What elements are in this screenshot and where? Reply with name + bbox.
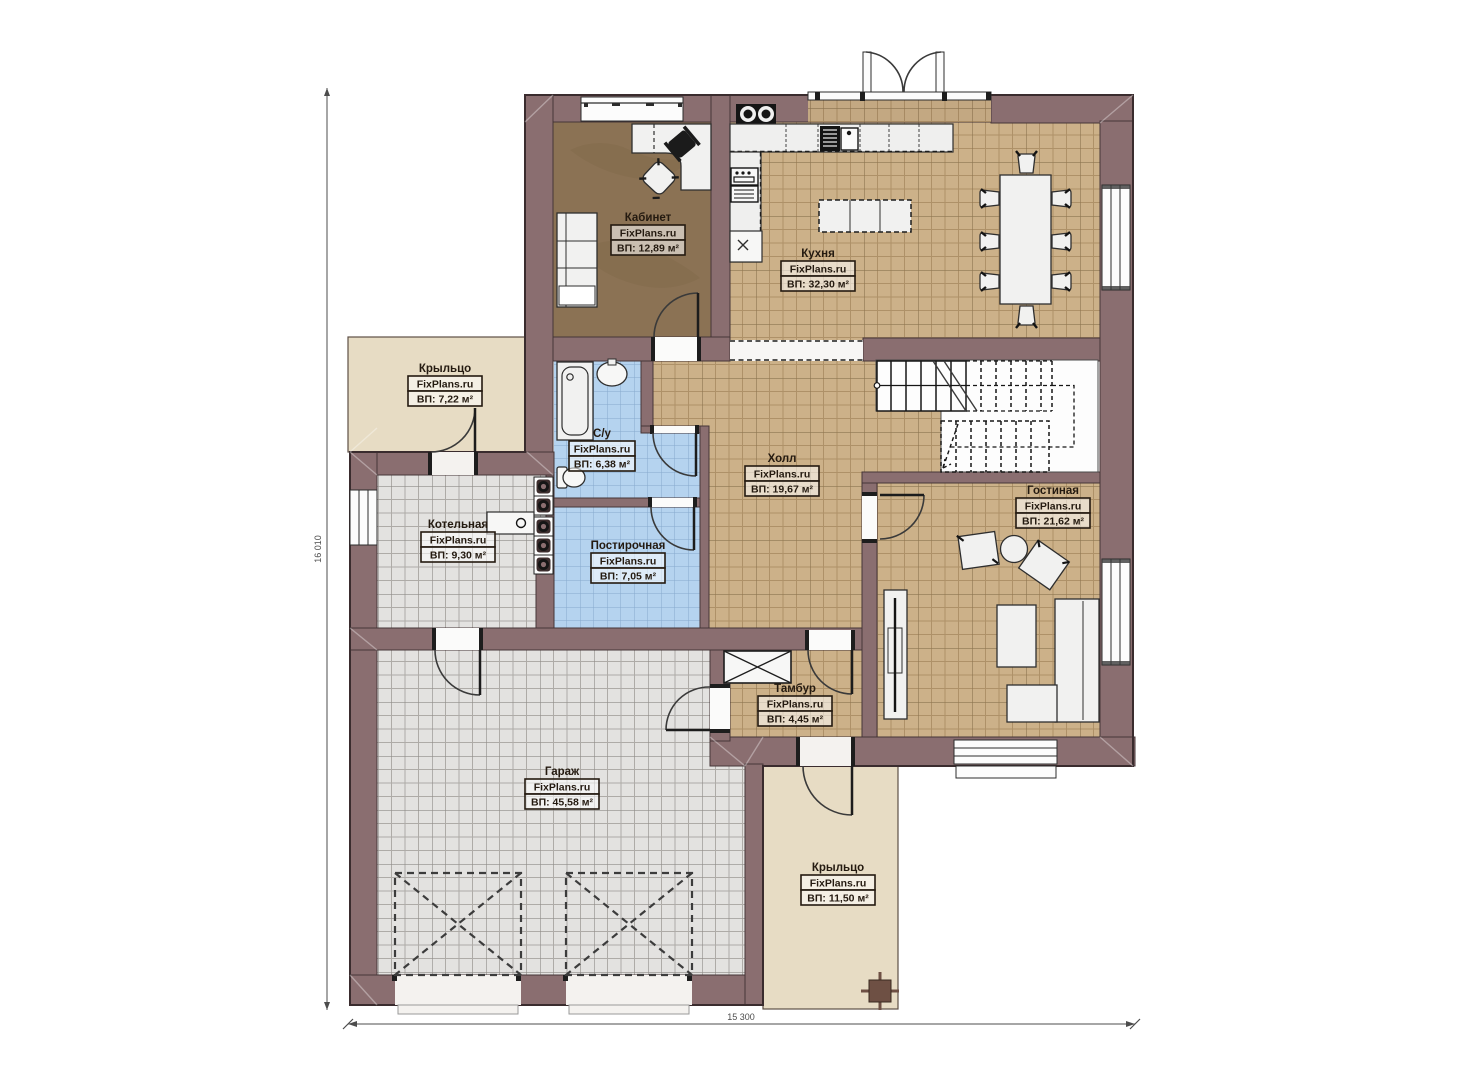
svg-text:ВП: 7,05 м²: ВП: 7,05 м² [600,571,657,583]
svg-text:ВП: 21,62 м²: ВП: 21,62 м² [1022,516,1085,528]
svg-text:FixPlans.ru: FixPlans.ru [600,556,657,568]
svg-text:ВП: 32,30 м²: ВП: 32,30 м² [787,279,850,291]
svg-text:FixPlans.ru: FixPlans.ru [810,878,867,890]
svg-text:ВП: 6,38 м²: ВП: 6,38 м² [574,459,631,471]
svg-text:ВП: 9,30 м²: ВП: 9,30 м² [430,550,487,562]
svg-text:С/у: С/у [593,428,612,440]
svg-text:FixPlans.ru: FixPlans.ru [1025,501,1082,513]
svg-text:Крыльцо: Крыльцо [419,363,471,375]
svg-text:Кабинет: Кабинет [625,212,672,224]
svg-text:Гостиная: Гостиная [1027,485,1079,497]
svg-text:Крыльцо: Крыльцо [812,862,864,874]
svg-text:Постирочная: Постирочная [591,540,666,552]
svg-text:FixPlans.ru: FixPlans.ru [620,228,677,240]
svg-text:Кухня: Кухня [801,248,835,260]
svg-text:Гараж: Гараж [545,766,580,778]
svg-text:ВП: 7,22 м²: ВП: 7,22 м² [417,394,474,406]
svg-text:FixPlans.ru: FixPlans.ru [430,535,487,547]
svg-text:15 300: 15 300 [727,1012,755,1022]
svg-text:ВП: 4,45 м²: ВП: 4,45 м² [767,714,824,726]
svg-text:ВП: 12,89 м²: ВП: 12,89 м² [617,243,680,255]
svg-text:FixPlans.ru: FixPlans.ru [574,444,631,456]
svg-text:16 010: 16 010 [313,535,323,563]
svg-text:Котельная: Котельная [428,519,488,531]
svg-text:Холл: Холл [768,453,797,465]
svg-text:ВП: 19,67 м²: ВП: 19,67 м² [751,484,814,496]
svg-text:FixPlans.ru: FixPlans.ru [534,782,591,794]
svg-text:ВП: 45,58 м²: ВП: 45,58 м² [531,797,594,809]
svg-text:FixPlans.ru: FixPlans.ru [767,699,824,711]
svg-text:FixPlans.ru: FixPlans.ru [417,379,474,391]
svg-text:FixPlans.ru: FixPlans.ru [790,264,847,276]
svg-text:FixPlans.ru: FixPlans.ru [754,469,811,481]
svg-text:Тамбур: Тамбур [774,683,816,695]
svg-text:ВП: 11,50 м²: ВП: 11,50 м² [807,893,869,905]
